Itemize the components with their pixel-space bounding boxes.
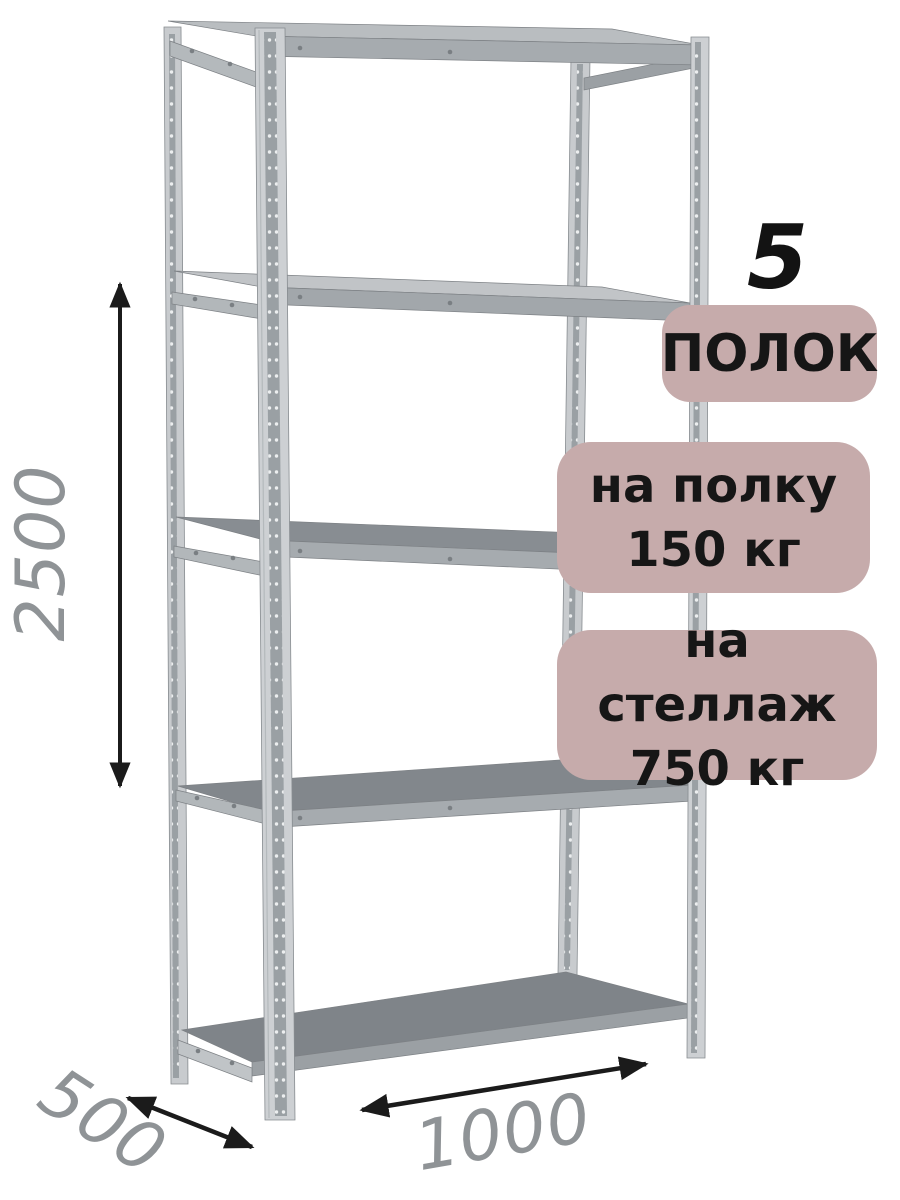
per-shelf-load-line2: 150 кг (626, 518, 801, 582)
shelf-count-badge: ПОЛОК (662, 305, 877, 402)
width-dimension: 1000 (362, 1064, 646, 1187)
width-dimension-label: 1000 (409, 1079, 597, 1188)
shelf-count-label: ПОЛОК (661, 324, 879, 384)
rack-illustration: 2500 500 1000 (0, 0, 900, 1200)
per-rack-load-line1: на стеллаж (557, 609, 877, 737)
per-shelf-load-badge: на полку 150 кг (557, 442, 870, 593)
shelf-5 (178, 972, 688, 1082)
shelf-count-number: 5 (695, 210, 860, 310)
depth-dimension-label: 500 (25, 1053, 179, 1192)
rack-post-front-left (255, 28, 295, 1120)
per-rack-load-badge: на стеллаж 750 кг (557, 630, 877, 780)
per-shelf-load-line1: на полку (590, 454, 837, 518)
depth-dimension: 500 (25, 1053, 252, 1192)
height-dimension: 2500 (2, 284, 120, 786)
height-dimension-label: 2500 (2, 464, 81, 641)
per-rack-load-line2: 750 кг (630, 737, 805, 801)
product-illustration-canvas: 2500 500 1000 5 ПОЛОК на полку 150 кг на… (0, 0, 900, 1200)
shelf-2 (172, 271, 690, 321)
shelf-1 (168, 21, 700, 90)
